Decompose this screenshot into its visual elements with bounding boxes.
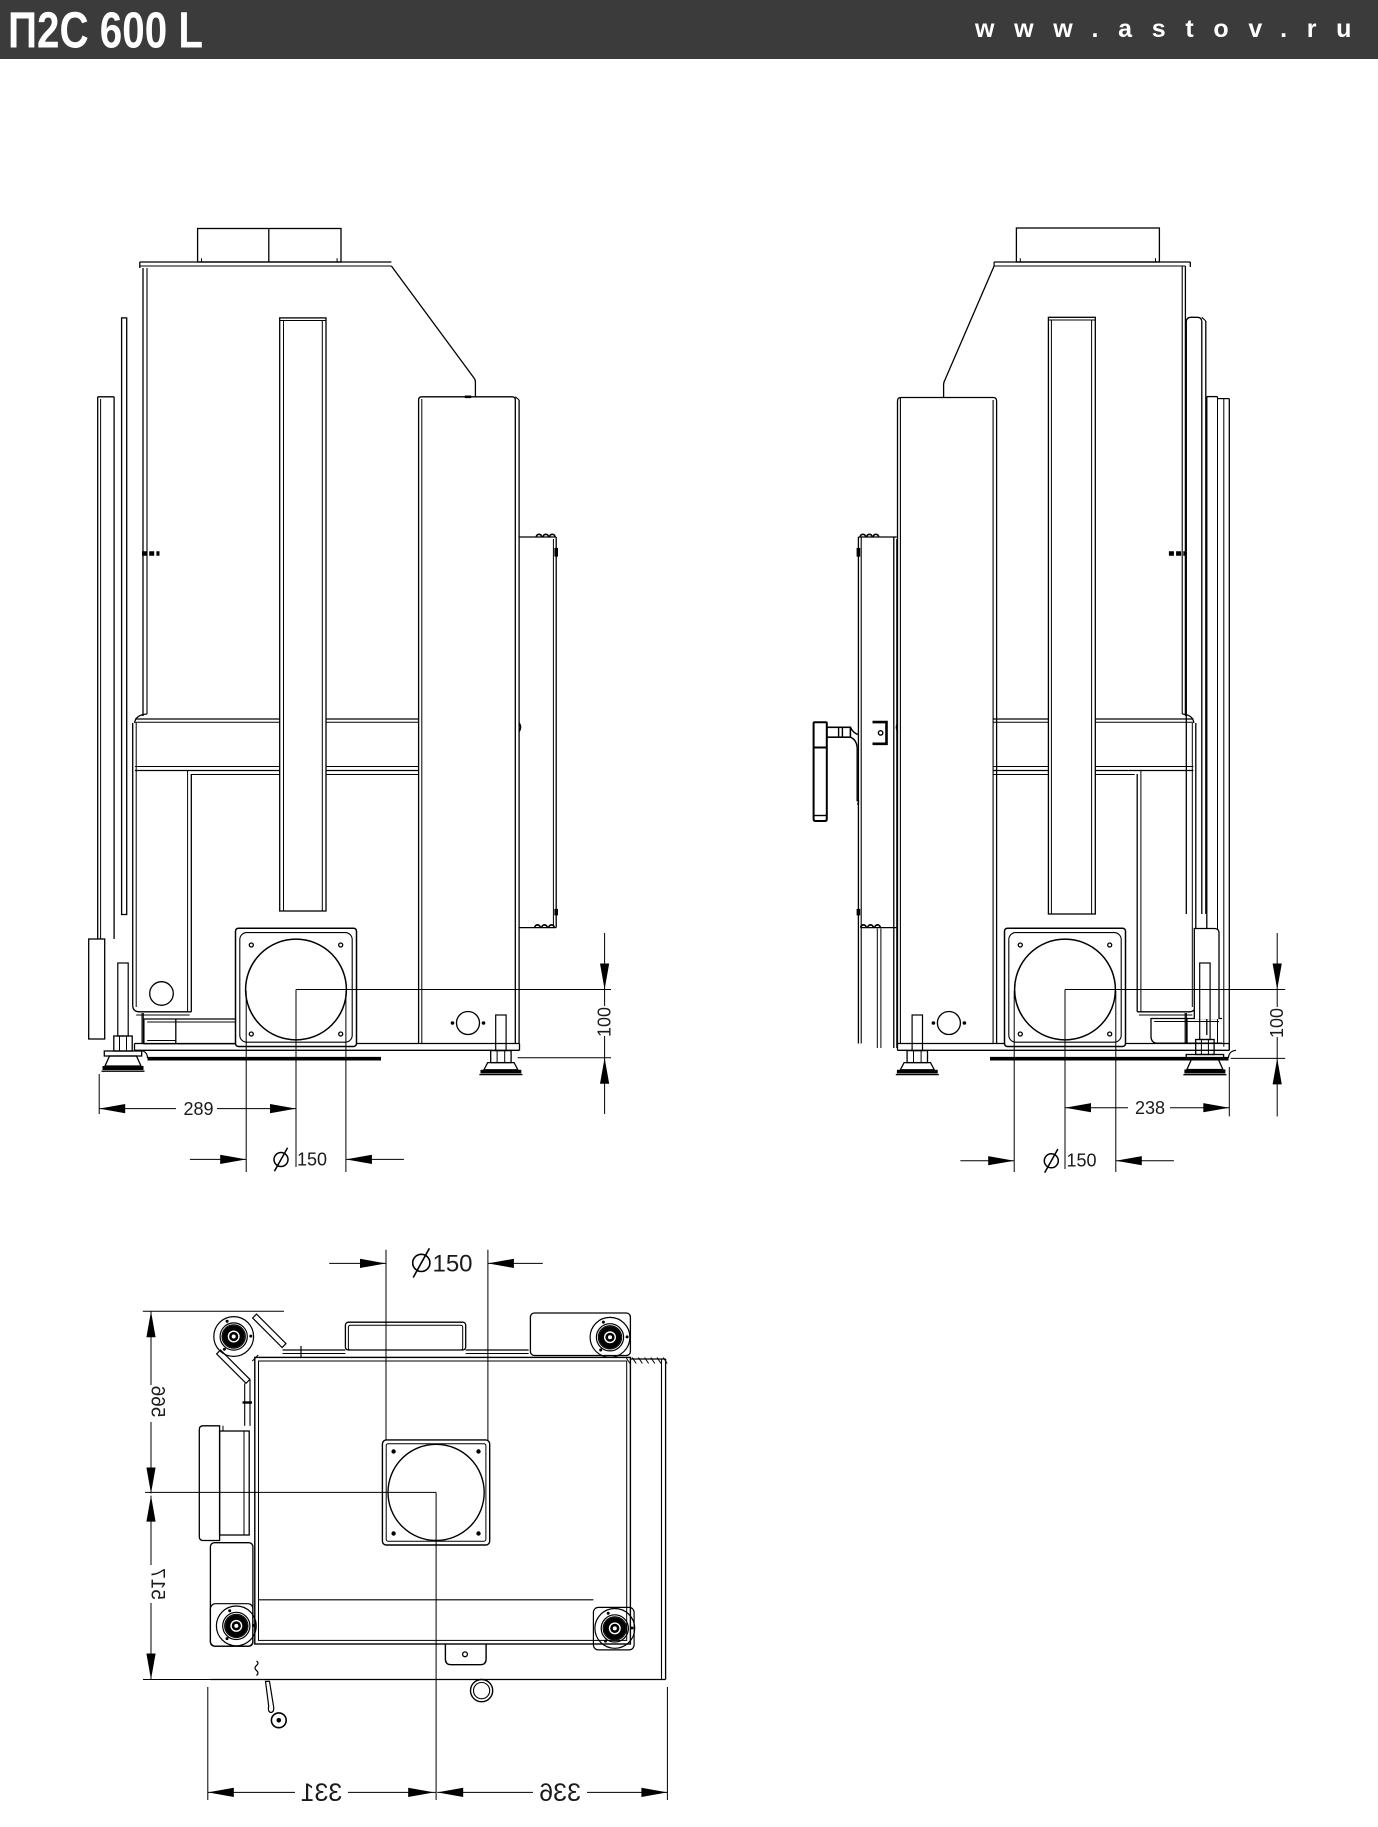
svg-text:238: 238	[1135, 1098, 1165, 1118]
svg-text:150: 150	[1066, 1151, 1096, 1171]
svg-text:289: 289	[183, 1099, 213, 1119]
svg-text:331: 331	[301, 1779, 343, 1807]
svg-text:П2С 600 L: П2С 600 L	[8, 2, 203, 59]
svg-text:517: 517	[147, 1568, 168, 1600]
svg-text:www.astov.ru: www.astov.ru	[974, 15, 1371, 43]
svg-text:150: 150	[297, 1149, 327, 1169]
svg-text:336: 336	[539, 1779, 581, 1807]
svg-text:100: 100	[1267, 1008, 1287, 1038]
svg-text:566: 566	[147, 1386, 168, 1418]
svg-text:100: 100	[595, 1007, 615, 1037]
svg-text:150: 150	[432, 1251, 472, 1278]
